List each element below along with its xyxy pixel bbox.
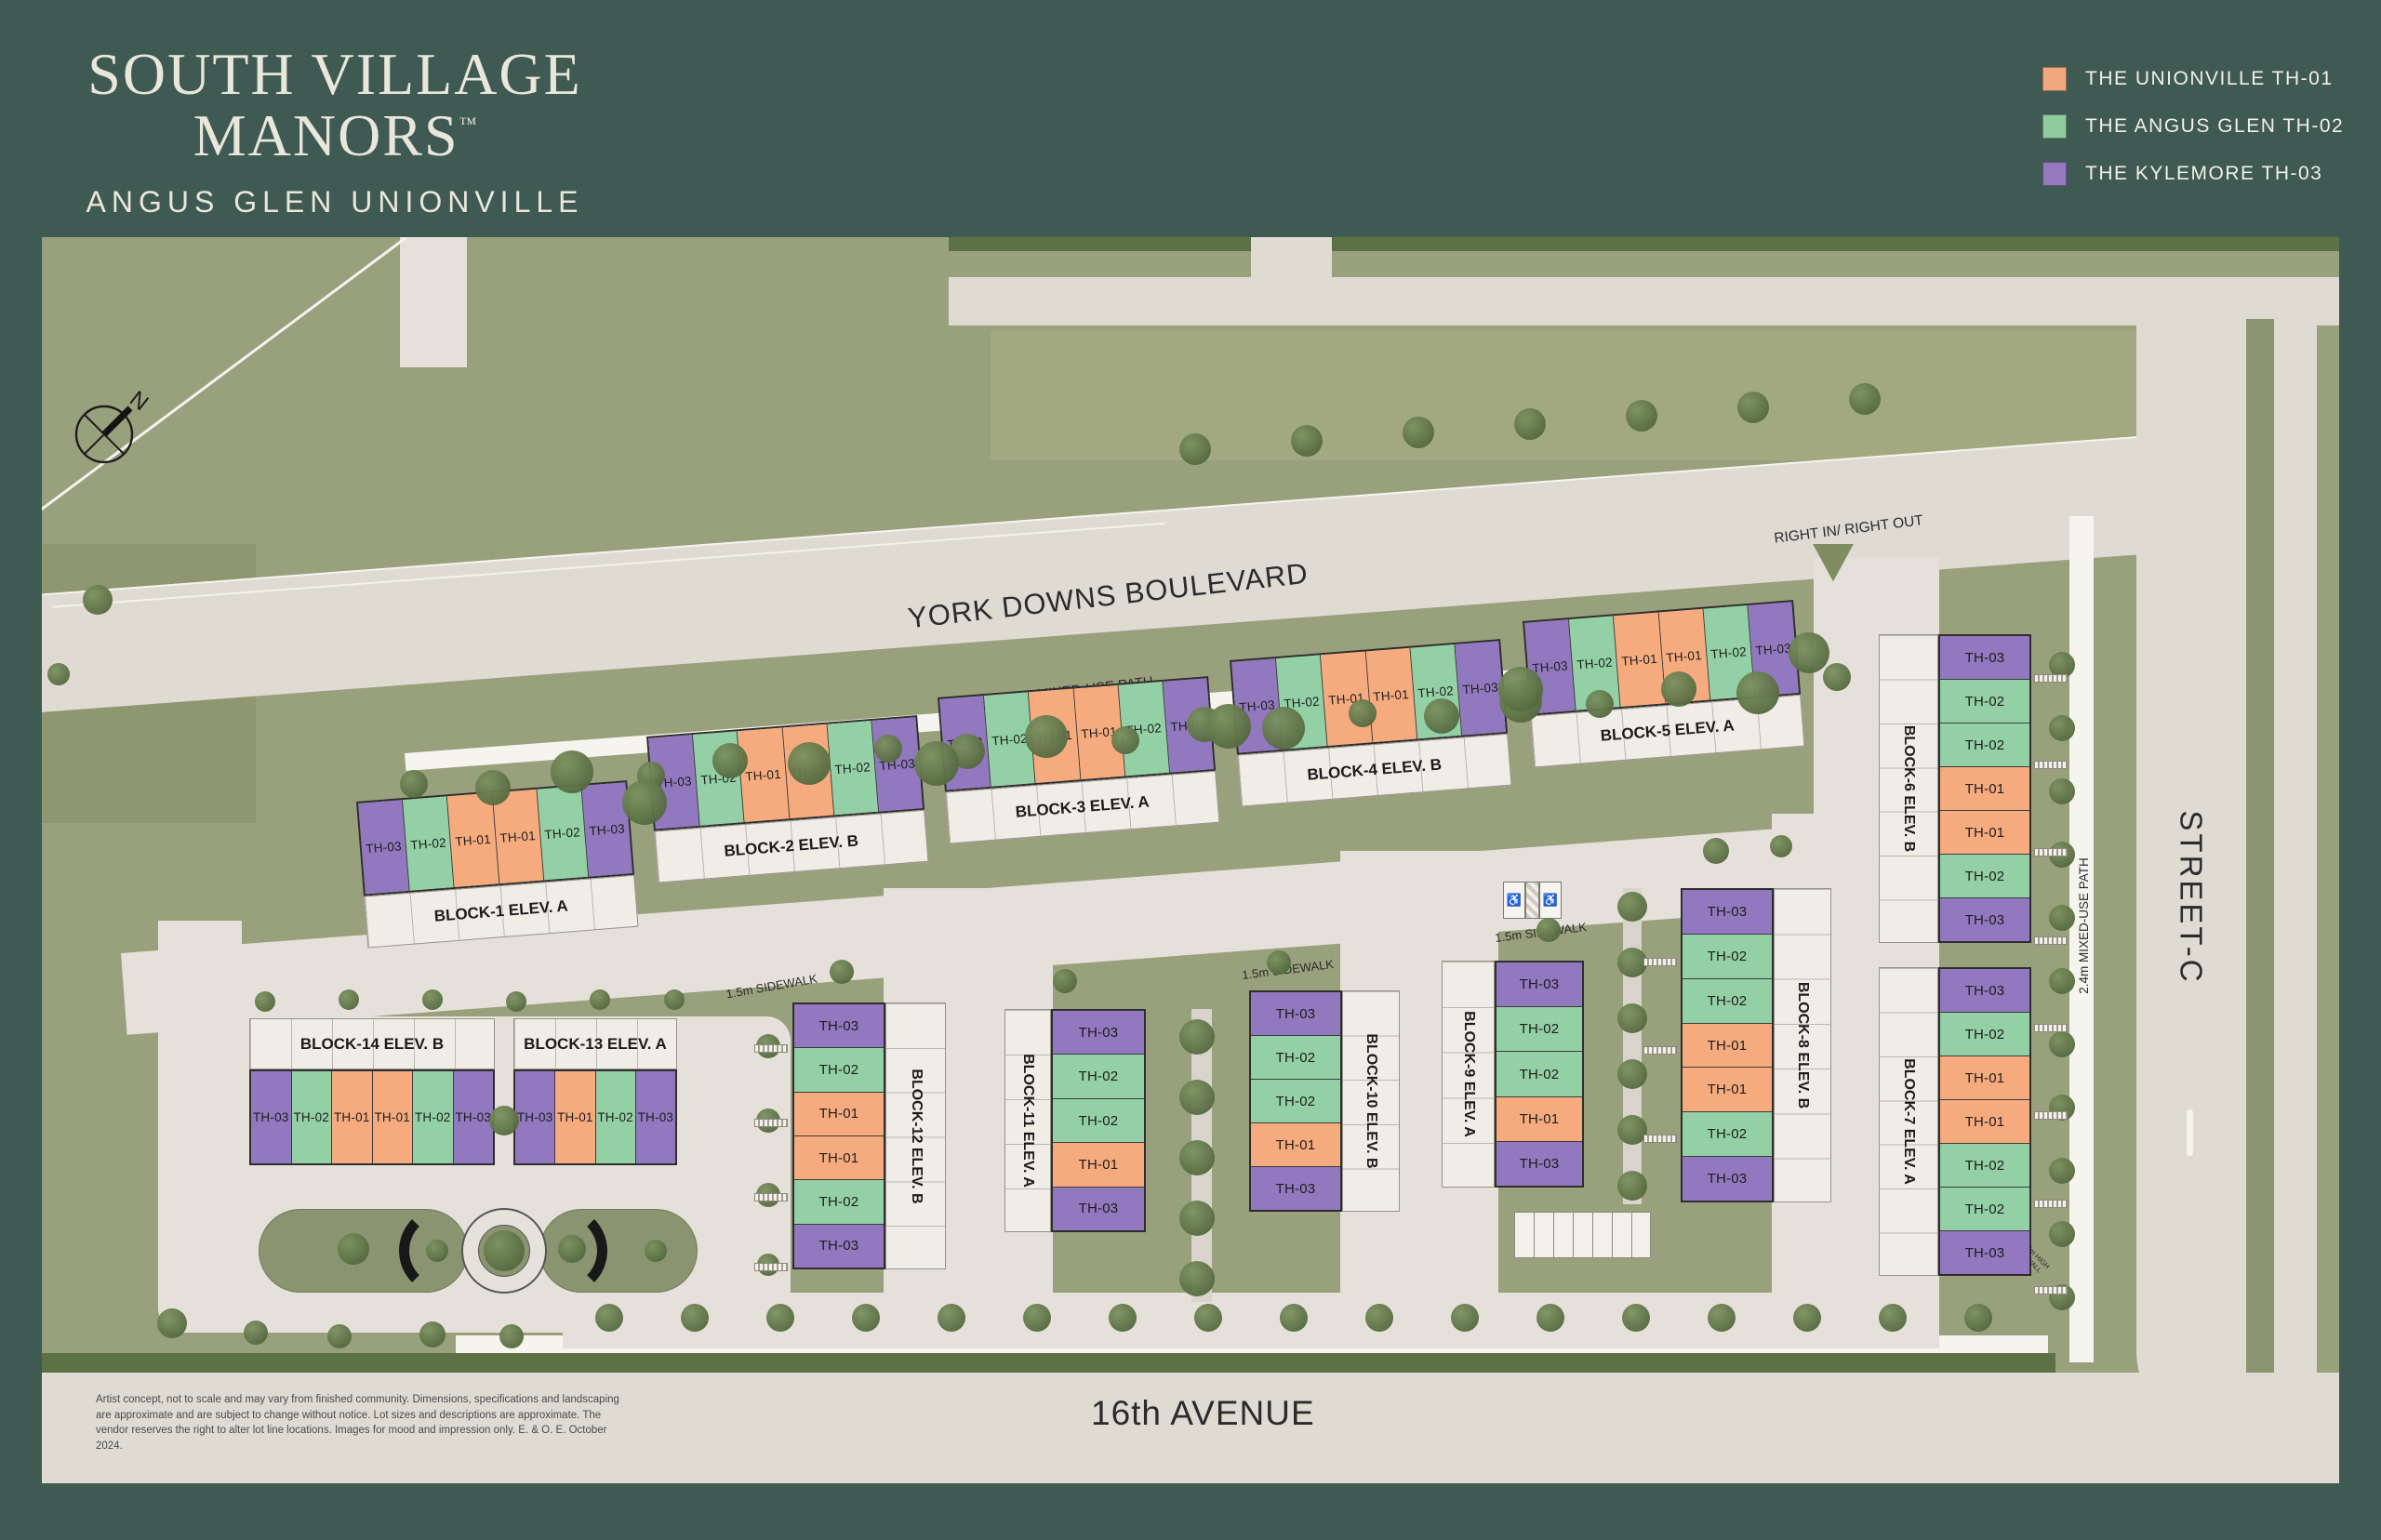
tree-icon [1617, 892, 1647, 922]
unit-label: TH-01 [1965, 1070, 2005, 1086]
unit-th-03: TH-03 [1053, 1011, 1144, 1055]
unit-label: TH-01 [499, 829, 537, 845]
tree-icon [1291, 425, 1323, 457]
walkway-icon [2034, 848, 2068, 856]
tree-icon [1403, 417, 1434, 448]
unit-label: TH-02 [293, 1110, 329, 1124]
unit-label: TH-03 [1965, 1245, 2005, 1261]
unit-th-01: TH-01 [373, 1071, 414, 1163]
path-label-24-right: 2.4m MIXED-USE PATH [2077, 857, 2091, 994]
driveway-apron: BLOCK-12 ELEV. B [885, 1002, 946, 1269]
tree-icon [1514, 408, 1546, 440]
tree-icon [558, 1235, 586, 1263]
tree-icon [484, 1230, 525, 1271]
unit-label: TH-01 [1965, 781, 2005, 797]
unit-th-03: TH-03 [1053, 1188, 1144, 1230]
unit-label: TH-02 [1079, 1069, 1119, 1084]
unit-th-02: TH-02 [1053, 1099, 1144, 1143]
unit-label: TH-01 [819, 1106, 859, 1122]
unit-th-01: TH-01 [738, 727, 790, 821]
unit-th-02: TH-02 [1940, 680, 2029, 724]
tree-icon [2049, 778, 2075, 804]
unit-th-03: TH-03 [794, 1004, 884, 1048]
tree-icon [244, 1321, 268, 1345]
unit-label: TH-01 [819, 1150, 859, 1166]
site-plan-page: { "brand": { "title_line1": "SOUTH VILLA… [0, 0, 2381, 1540]
road-label-street-c-wrap: STREET-C [2151, 786, 2231, 1009]
unit-th-01: TH-01 [794, 1093, 884, 1136]
accessible-parking-spot: ♿ [1539, 882, 1562, 919]
unit-label: TH-02 [1417, 684, 1455, 700]
block-7: BLOCK-7 ELEV. ATH-03TH-02TH-01TH-01TH-02… [1879, 967, 2031, 1276]
unit-th-01: TH-01 [1940, 1100, 2029, 1144]
unit-label: TH-02 [819, 1062, 859, 1078]
walkway-icon [2034, 1286, 2068, 1294]
legend-label: THE ANGUS GLEN TH-02 [2085, 115, 2344, 138]
tree-icon [1617, 1003, 1647, 1033]
tree-icon [1267, 950, 1291, 975]
unit-th-02: TH-02 [1251, 1080, 1340, 1123]
unit-label: TH-01 [1520, 1111, 1560, 1127]
unit-label: TH-01 [1965, 825, 2005, 841]
unit-th-02: TH-02 [1940, 724, 2029, 767]
unit-th-01: TH-01 [332, 1071, 373, 1163]
unit-label: TH-02 [1708, 993, 1748, 1009]
tree-icon [327, 1324, 352, 1348]
unit-label: TH-03 [589, 821, 626, 838]
tree-icon [1179, 1201, 1215, 1236]
tree-icon [622, 780, 667, 825]
legend-label: THE KYLEMORE TH-03 [2085, 163, 2322, 185]
tree-icon [1793, 1304, 1821, 1332]
tree-icon [338, 1233, 369, 1265]
disclaimer-text: Artist concept, not to scale and may var… [96, 1392, 635, 1454]
tree-icon [1109, 1304, 1137, 1332]
unit-th-02: TH-02 [794, 1048, 884, 1092]
unit-th-01: TH-01 [555, 1071, 595, 1163]
brand-subtitle: ANGUS GLEN UNIONVILLE [65, 185, 605, 219]
tree-icon [157, 1308, 187, 1338]
tree-icon [1424, 698, 1459, 734]
tree-icon [422, 989, 443, 1010]
block-13: BLOCK-13 ELEV. ATH-03TH-01TH-02TH-03 [513, 1018, 677, 1165]
walkway-icon [754, 1119, 788, 1127]
tree-icon [938, 1304, 965, 1332]
block-6: BLOCK-6 ELEV. BTH-03TH-02TH-02TH-01TH-01… [1879, 634, 2031, 943]
tree-icon [1849, 383, 1881, 415]
unit-th-02: TH-02 [413, 1071, 454, 1163]
unit-label: TH-02 [1576, 655, 1614, 671]
unit-label: TH-03 [1079, 1025, 1119, 1041]
unit-th-02: TH-02 [1683, 1112, 1772, 1157]
unit-label: TH-02 [597, 1110, 633, 1124]
unit-th-03: TH-03 [1683, 1157, 1772, 1201]
unit-label: TH-03 [253, 1110, 289, 1124]
site-plan: YORK DOWNS BOULEVARD 3m MIXED-USE PATH S… [42, 237, 2339, 1483]
tree-icon [419, 1321, 446, 1347]
unit-label: TH-01 [455, 831, 492, 848]
unit-label: TH-01 [334, 1110, 370, 1124]
tree-icon [1879, 1304, 1907, 1332]
tree-icon [1964, 1304, 1992, 1332]
tree-icon [1622, 1304, 1650, 1332]
tree-icon [1617, 1059, 1647, 1089]
block-label: BLOCK-3 ELEV. A [1015, 793, 1150, 822]
unit-th-01: TH-01 [1496, 1097, 1582, 1142]
legend-item: THE ANGUS GLEN TH-02 [2042, 114, 2344, 139]
unit-th-02: TH-02 [403, 796, 455, 890]
hedge-row [949, 237, 2339, 251]
walkway-icon [1643, 958, 1677, 966]
tree-icon [830, 960, 854, 984]
unit-th-02: TH-02 [1053, 1055, 1144, 1098]
unit-label: TH-01 [1666, 648, 1703, 665]
tree-icon [339, 989, 359, 1010]
unit-th-02: TH-02 [1940, 855, 2029, 898]
unit-label: TH-02 [1276, 1094, 1316, 1109]
unit-label: TH-03 [1462, 680, 1499, 697]
unit-label: TH-02 [1965, 694, 2005, 710]
tree-icon [1770, 835, 1792, 857]
unit-label: TH-01 [557, 1110, 593, 1124]
block-label: BLOCK-9 ELEV. A [1460, 1011, 1477, 1137]
tree-icon [681, 1304, 709, 1332]
tree-icon [400, 770, 428, 798]
court-stub [158, 921, 242, 1055]
tree-icon [712, 743, 748, 778]
grass-patch [991, 330, 2162, 460]
walkway-icon [2034, 674, 2068, 683]
legend-item: THE UNIONVILLE TH-01 [2042, 67, 2344, 91]
unit-th-01: TH-01 [1365, 648, 1417, 742]
unit-label: TH-01 [374, 1110, 410, 1124]
tree-icon [1206, 704, 1251, 749]
walkway-icon [2034, 936, 2068, 945]
tree-icon [788, 742, 831, 785]
unit-label: TH-01 [1621, 651, 1658, 668]
tree-icon [1498, 667, 1543, 711]
walkway-icon [2034, 1111, 2068, 1120]
unit-label: TH-02 [1965, 737, 2005, 753]
unit-label: TH-03 [1276, 1181, 1316, 1197]
unit-label: TH-03 [1965, 650, 2005, 666]
unit-label: TH-03 [1520, 1156, 1560, 1172]
unit-label: TH-02 [544, 825, 581, 842]
unit-label: TH-02 [1965, 869, 2005, 884]
unit-label: TH-02 [1276, 1050, 1316, 1066]
block-8: TH-03TH-02TH-02TH-01TH-01TH-02TH-03BLOCK… [1681, 888, 1831, 1202]
wheelchair-icon: ♿ [1543, 893, 1558, 908]
unit-th-01: TH-01 [794, 1136, 884, 1180]
unit-th-02: TH-02 [1251, 1036, 1340, 1080]
block-label: BLOCK-8 ELEV. B [1794, 982, 1811, 1109]
tree-icon [1536, 1304, 1564, 1332]
unit-th-03: TH-03 [1940, 898, 2029, 941]
tree-icon [1349, 699, 1377, 727]
unit-th-03: TH-03 [1251, 992, 1340, 1036]
tree-icon [1179, 1140, 1215, 1175]
unit-th-02: TH-02 [537, 786, 589, 880]
tree-icon [1111, 726, 1139, 754]
tree-icon [83, 585, 113, 615]
unit-th-01: TH-01 [1251, 1123, 1340, 1167]
unit-th-01: TH-01 [1940, 1056, 2029, 1100]
tree-icon [1736, 671, 1779, 714]
unit-th-02: TH-02 [1940, 1188, 2029, 1231]
unit-label: TH-02 [1079, 1113, 1119, 1129]
driveway-apron: BLOCK-10 ELEV. B [1342, 990, 1400, 1212]
unit-label: TH-03 [1965, 912, 2005, 928]
tree-icon [664, 989, 685, 1010]
tree-icon [2049, 905, 2075, 931]
tree-icon [499, 1324, 524, 1348]
unit-label: TH-01 [1708, 1082, 1748, 1097]
block-label: BLOCK-12 ELEV. B [908, 1069, 924, 1203]
tree-icon [47, 663, 70, 685]
tree-icon [1262, 707, 1305, 750]
brand-logo: SOUTH VILLAGE MANORS™ ANGUS GLEN UNIONVI… [65, 45, 605, 219]
driveway-apron: BLOCK-14 ELEV. B [249, 1018, 495, 1069]
unit-label: TH-03 [819, 1238, 859, 1254]
unit-th-03: TH-03 [1496, 1142, 1582, 1186]
tree-icon [1789, 632, 1829, 673]
legend: THE UNIONVILLE TH-01THE ANGUS GLEN TH-02… [2042, 67, 2344, 209]
unit-label: TH-02 [1708, 1126, 1748, 1142]
unit-th-03: TH-03 [454, 1071, 494, 1163]
unit-th-01: TH-01 [1683, 1068, 1772, 1112]
legend-label: THE UNIONVILLE TH-01 [2085, 68, 2334, 90]
block-12: TH-03TH-02TH-01TH-01TH-02TH-03BLOCK-12 E… [792, 1002, 946, 1269]
tree-icon [255, 991, 275, 1012]
unit-label: TH-03 [517, 1110, 553, 1124]
tree-icon [2049, 1031, 2075, 1057]
unit-label: TH-03 [1755, 641, 1792, 657]
visitor-parking-stalls [1514, 1212, 1651, 1258]
unit-label: TH-01 [1276, 1137, 1316, 1153]
sidewalk-line [42, 237, 407, 516]
tree-icon [2049, 715, 2075, 741]
block-label: BLOCK-6 ELEV. B [1900, 725, 1917, 852]
background-road [1251, 237, 1332, 324]
tree-icon [1179, 1019, 1215, 1055]
unit-label: TH-01 [1079, 1157, 1119, 1173]
tree-icon [645, 1240, 667, 1262]
block-14: BLOCK-14 ELEV. BTH-03TH-02TH-01TH-01TH-0… [249, 1018, 495, 1165]
tree-icon [595, 1304, 623, 1332]
tree-icon [1708, 1304, 1736, 1332]
tree-icon [1023, 1304, 1051, 1332]
walkway-icon [1643, 1135, 1677, 1143]
unit-th-03: TH-03 [1683, 890, 1772, 935]
unit-th-01: TH-01 [1053, 1143, 1144, 1187]
unit-th-01: TH-01 [1614, 612, 1666, 706]
walkway-icon [754, 1263, 788, 1271]
block-label: BLOCK-14 ELEV. B [300, 1035, 444, 1054]
legend-swatch [2042, 162, 2067, 186]
walkway-icon [2034, 761, 2068, 769]
brand-title-line1: SOUTH VILLAGE [65, 45, 605, 104]
unit-label: TH-02 [415, 1110, 451, 1124]
brand-title-line2: MANORS™ [65, 104, 605, 166]
block-label: BLOCK-2 ELEV. B [724, 831, 859, 860]
unit-label: TH-03 [638, 1110, 674, 1124]
unit-label: TH-03 [1708, 904, 1748, 920]
tree-icon [766, 1304, 794, 1332]
tree-icon [1194, 1304, 1222, 1332]
block-9: BLOCK-9 ELEV. ATH-03TH-02TH-02TH-01TH-03 [1442, 961, 1584, 1188]
unit-th-02: TH-02 [794, 1180, 884, 1224]
driveway-apron: BLOCK-11 ELEV. A [1004, 1009, 1051, 1232]
driveway-apron: BLOCK-8 ELEV. B [1774, 888, 1831, 1202]
tree-icon [852, 1304, 880, 1332]
unit-th-02: TH-02 [292, 1071, 333, 1163]
block-label: BLOCK-7 ELEV. A [1900, 1058, 1917, 1185]
unit-th-03: TH-03 [1251, 1167, 1340, 1210]
wheelchair-icon: ♿ [1507, 893, 1522, 908]
driveway-apron: BLOCK-6 ELEV. B [1879, 634, 1938, 943]
unit-label: TH-02 [1965, 1027, 2005, 1042]
background-path [400, 237, 467, 367]
tree-icon [2049, 1221, 2075, 1247]
unit-th-01: TH-01 [447, 792, 499, 886]
unit-th-02: TH-02 [1496, 1007, 1582, 1052]
unit-th-03: TH-03 [1940, 969, 2029, 1013]
block-label: BLOCK-1 ELEV. A [433, 897, 568, 926]
tree-icon [1280, 1304, 1308, 1332]
unit-th-03: TH-03 [1940, 1231, 2029, 1274]
tree-icon [2049, 968, 2075, 994]
unit-th-02: TH-02 [1683, 979, 1772, 1024]
unit-label: TH-02 [991, 731, 1029, 748]
unit-th-03: TH-03 [251, 1071, 292, 1163]
unit-label: TH-03 [1532, 658, 1569, 675]
driveway-apron: BLOCK-9 ELEV. A [1442, 961, 1495, 1188]
unit-label: TH-03 [1965, 983, 2005, 999]
unit-label: TH-02 [1708, 949, 1748, 964]
tree-icon [1025, 715, 1068, 758]
unit-th-03: TH-03 [794, 1225, 884, 1268]
unit-label: TH-02 [1520, 1067, 1560, 1082]
tree-icon [1737, 392, 1769, 423]
tree-icon [551, 750, 593, 793]
unit-label: TH-03 [1520, 976, 1560, 992]
legend-item: THE KYLEMORE TH-03 [2042, 162, 2344, 186]
road-street-c-east [2274, 319, 2317, 1384]
walkway-icon [1643, 1046, 1677, 1055]
unit-label: TH-02 [1965, 1158, 2005, 1174]
unit-th-01: TH-01 [1683, 1024, 1772, 1069]
tree-icon [914, 741, 959, 786]
road-label-street-c: STREET-C [2174, 810, 2209, 984]
tree-icon [1179, 1261, 1215, 1296]
walkway-icon [754, 1193, 788, 1201]
unit-th-02: TH-02 [596, 1071, 636, 1163]
walkway-icon [2034, 1200, 2068, 1208]
walkway-icon [2034, 1024, 2068, 1032]
unit-label: TH-03 [819, 1018, 859, 1034]
unit-th-02: TH-02 [1940, 1013, 2029, 1056]
unit-th-03: TH-03 [358, 800, 410, 894]
tree-icon [1617, 1171, 1647, 1201]
unit-th-01: TH-01 [1940, 811, 2029, 855]
tree-icon [1536, 918, 1561, 942]
road-label-16th: 16th AVENUE [1091, 1394, 1315, 1433]
unit-label: TH-01 [1965, 1114, 2005, 1130]
tree-icon [874, 735, 902, 763]
block-label: BLOCK-10 ELEV. B [1363, 1033, 1379, 1168]
unit-th-02: TH-02 [1683, 935, 1772, 979]
street-c-median [2246, 319, 2274, 1398]
trademark-symbol: ™ [459, 114, 477, 134]
tree-icon [1179, 1080, 1215, 1115]
accessible-parking-spot: ♿ [1503, 882, 1525, 919]
tree-icon [475, 770, 511, 805]
compass-north-icon: N [65, 381, 158, 474]
tree-icon [1365, 1304, 1393, 1332]
unit-label: TH-03 [1708, 1171, 1748, 1187]
unit-th-01: TH-01 [1940, 767, 2029, 811]
block-label: BLOCK-5 ELEV. A [1600, 717, 1735, 746]
accessible-parking-hatch [1525, 882, 1539, 919]
legend-swatch [2042, 114, 2067, 139]
unit-th-02: TH-02 [1496, 1052, 1582, 1096]
tree-icon [426, 1240, 448, 1262]
block-label: BLOCK-4 ELEV. B [1307, 755, 1443, 784]
tree-icon [1451, 1304, 1479, 1332]
unit-label: TH-02 [819, 1194, 859, 1210]
hedge-16th [42, 1353, 2055, 1373]
legend-swatch [2042, 67, 2067, 91]
driveway-apron: BLOCK-7 ELEV. A [1879, 967, 1938, 1276]
driveway-apron: BLOCK-13 ELEV. A [513, 1018, 677, 1069]
unit-label: TH-02 [410, 835, 447, 852]
background-road [949, 277, 2339, 325]
unit-label: TH-02 [1965, 1201, 2005, 1217]
block-10: TH-03TH-02TH-02TH-01TH-03BLOCK-10 ELEV. … [1249, 990, 1400, 1212]
unit-label: TH-01 [1708, 1038, 1748, 1054]
unit-label: TH-02 [1710, 644, 1748, 661]
tree-icon [2049, 1158, 2075, 1184]
unit-label: TH-03 [1079, 1201, 1119, 1216]
tree-icon [590, 989, 610, 1010]
block-1: TH-03TH-02TH-01TH-01TH-02TH-03BLOCK-1 EL… [356, 780, 638, 948]
tree-icon [506, 991, 526, 1012]
unit-th-03: TH-03 [636, 1071, 675, 1163]
unit-label: TH-01 [745, 766, 782, 783]
tree-icon [1626, 400, 1657, 431]
tree-icon [489, 1106, 519, 1135]
tree-icon [1661, 671, 1696, 707]
block-label: BLOCK-11 ELEV. A [1019, 1054, 1036, 1188]
unit-label: TH-03 [366, 839, 403, 856]
unit-th-02: TH-02 [1940, 1144, 2029, 1188]
unit-label: TH-02 [834, 760, 871, 777]
unit-label: TH-03 [455, 1110, 491, 1124]
unit-label: TH-03 [1276, 1006, 1316, 1022]
street-c-lane-dash [2187, 1109, 2193, 1156]
unit-th-03: TH-03 [515, 1071, 555, 1163]
tree-icon [1703, 838, 1729, 864]
unit-label: TH-02 [1520, 1021, 1560, 1037]
path-label-24-right-wrap: 2.4m MIXED-USE PATH [2014, 842, 2153, 1009]
tree-icon [1053, 969, 1077, 993]
unit-th-03: TH-03 [1940, 636, 2029, 680]
walkway-icon [754, 1044, 788, 1053]
block-label: BLOCK-13 ELEV. A [524, 1035, 667, 1054]
unit-label: TH-01 [1373, 687, 1410, 704]
mews-walk [1623, 888, 1642, 1204]
tree-icon [1179, 433, 1211, 465]
